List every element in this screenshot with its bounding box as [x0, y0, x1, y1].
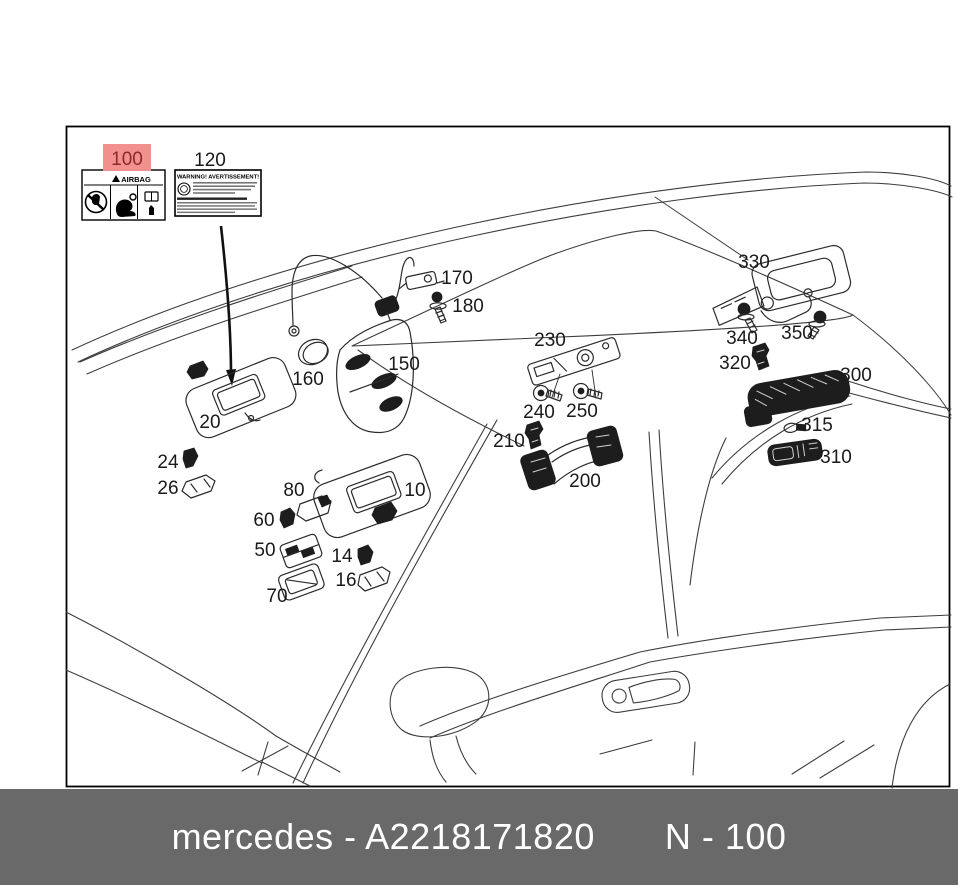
- callout-24[interactable]: 24: [157, 452, 179, 473]
- footer-part-number: mercedes - A2218171820: [172, 816, 595, 858]
- warning-label-title: WARNING! AVERTISSEMENT!: [177, 175, 259, 181]
- callout-20[interactable]: 20: [199, 412, 220, 433]
- callout-80[interactable]: 80: [283, 480, 304, 501]
- footer-bar: mercedes - A2218171820 N - 100: [0, 789, 958, 885]
- text-warning-label: WARNING! AVERTISSEMENT!: [175, 170, 261, 216]
- airbag-warning-label: AIRBAG: [82, 170, 165, 220]
- callout-150[interactable]: 150: [388, 354, 420, 375]
- callout-180[interactable]: 180: [452, 296, 484, 317]
- callout-16[interactable]: 16: [335, 570, 356, 591]
- callout-160[interactable]: 160: [292, 369, 324, 390]
- callout-26[interactable]: 26: [157, 478, 178, 499]
- callout-120[interactable]: 120: [194, 150, 226, 171]
- callout-14[interactable]: 14: [331, 546, 353, 567]
- callout-10[interactable]: 10: [404, 480, 425, 501]
- callout-315[interactable]: 315: [801, 415, 833, 436]
- parts-catalog-page: AIRBAG WARNING! AVERTISSEMENT!: [0, 0, 958, 885]
- callout-200[interactable]: 200: [569, 471, 601, 492]
- callout-310[interactable]: 310: [820, 447, 852, 468]
- callout-230[interactable]: 230: [534, 330, 566, 351]
- callout-330[interactable]: 330: [738, 252, 770, 273]
- callout-250[interactable]: 250: [566, 401, 598, 422]
- callout-300[interactable]: 300: [840, 365, 872, 386]
- callout-170[interactable]: 170: [441, 268, 473, 289]
- callout-320[interactable]: 320: [719, 353, 751, 374]
- footer-page-ref: N - 100: [665, 816, 787, 858]
- callout-340[interactable]: 340: [726, 328, 758, 349]
- exploded-parts-diagram: AIRBAG WARNING! AVERTISSEMENT!: [0, 0, 958, 885]
- callout-60[interactable]: 60: [253, 510, 274, 531]
- airbag-label-title: AIRBAG: [121, 175, 151, 184]
- callout-70[interactable]: 70: [266, 586, 287, 607]
- callout-350[interactable]: 350: [781, 323, 813, 344]
- callout-100[interactable]: 100: [111, 149, 143, 170]
- callout-210[interactable]: 210: [493, 431, 525, 452]
- callout-50[interactable]: 50: [254, 540, 275, 561]
- callout-240[interactable]: 240: [523, 402, 555, 423]
